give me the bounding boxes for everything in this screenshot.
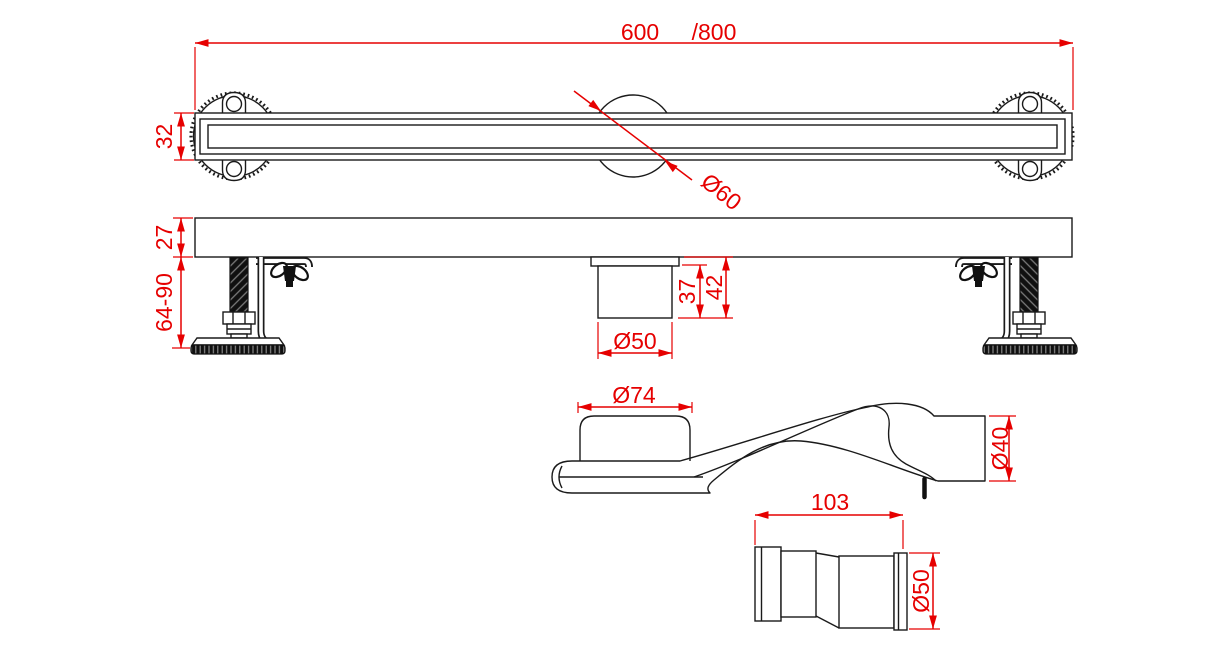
trap-body-outline xyxy=(552,403,985,493)
foot-disc xyxy=(191,338,285,354)
dim-trap-outlet-diameter-text: Ø40 xyxy=(987,427,1013,470)
dim-trap-inlet-diameter: Ø74 xyxy=(578,382,692,413)
dim-channel-width-text: 32 xyxy=(151,124,177,150)
dim-foot-height-text: 64-90 xyxy=(151,273,177,332)
dim-outlet-total-height-text: 42 xyxy=(701,275,727,301)
technical-drawing-svg: 600 /800 32 Ø60 xyxy=(0,0,1215,654)
dim-connector-diameter: Ø50 xyxy=(908,553,940,629)
connector-left-cylinder xyxy=(781,551,816,617)
trap-inlet-cup xyxy=(580,416,690,461)
dim-connector-length-text: 103 xyxy=(811,489,849,515)
connector-right-cylinder xyxy=(839,556,894,628)
outlet-flange xyxy=(591,257,679,266)
dim-trap-inlet-diameter-text: Ø74 xyxy=(612,382,656,408)
dim-outlet-diameter-text: Ø50 xyxy=(613,328,656,354)
dim-drain-diameter-text: Ø60 xyxy=(696,168,746,215)
dim-channel-width: 32 xyxy=(151,113,194,160)
dim-outlet-diameter: Ø50 xyxy=(598,322,672,359)
connector-taper-bottom xyxy=(816,616,839,628)
threaded-rod xyxy=(230,258,248,312)
adjustable-foot-left xyxy=(191,257,310,354)
drawing-canvas: 600 /800 32 Ø60 xyxy=(0,0,1215,654)
dim-length-text: 600 xyxy=(621,19,659,45)
siphon-view: Ø74 Ø40 xyxy=(552,382,1016,497)
dim-length-alt-text: /800 xyxy=(692,19,737,45)
dim-foot-height: 64-90 xyxy=(151,257,190,348)
connector-view: 103 Ø50 xyxy=(755,489,940,630)
connector-right-collar xyxy=(894,553,907,630)
dim-outlet-height-text: 37 xyxy=(674,279,700,305)
dim-trap-outlet-diameter: Ø40 xyxy=(987,416,1016,481)
connector-taper-top xyxy=(816,553,839,557)
dim-body-height-text: 27 xyxy=(151,225,177,251)
side-view: 27 64-90 37 42 Ø50 xyxy=(151,218,1077,359)
connector-left-collar xyxy=(755,547,781,621)
channel-body-side xyxy=(195,218,1072,257)
top-view: 600 /800 32 Ø60 xyxy=(151,19,1073,215)
screw-hole-top xyxy=(227,97,242,112)
adjustment-nuts xyxy=(223,312,255,338)
adjustable-foot-right xyxy=(958,257,1077,354)
dim-connector-length: 103 xyxy=(755,489,903,549)
outlet-tube xyxy=(598,266,672,318)
screw-hole-bottom xyxy=(227,162,242,177)
dim-body-height: 27 xyxy=(151,218,193,257)
dim-connector-diameter-text: Ø50 xyxy=(908,569,934,612)
